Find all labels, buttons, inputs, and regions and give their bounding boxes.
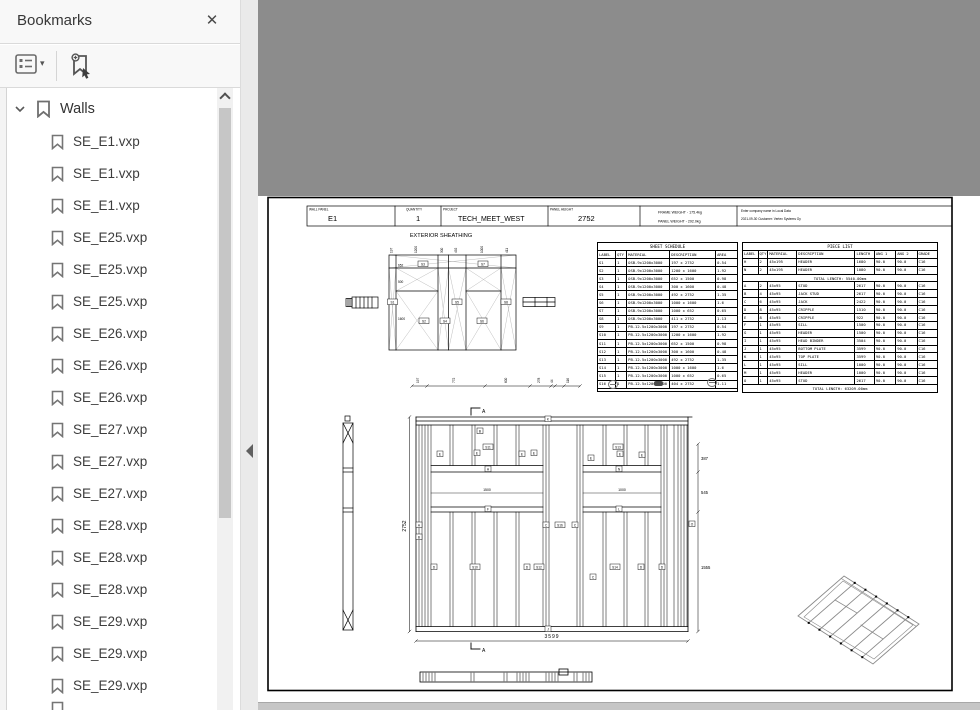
svg-text:E: E bbox=[533, 451, 535, 455]
elevation-label: E bbox=[474, 450, 480, 456]
table-row: S121PB-12.5x1200x3000300 x 16000.48 bbox=[598, 348, 737, 356]
stamp-mark bbox=[707, 378, 717, 387]
elevation-dims bbox=[408, 416, 700, 643]
table-cell: 1 bbox=[616, 259, 627, 266]
bookmark-item[interactable]: SE_E28.vxp bbox=[8, 510, 217, 542]
table-cell: 0.65 bbox=[716, 372, 737, 379]
table-cell: 300 x 1600 bbox=[670, 348, 716, 355]
bookmark-root-walls[interactable]: Walls bbox=[8, 94, 217, 124]
table-row: S81OSB-9x1200x3000411 x 27521.13 bbox=[598, 316, 737, 324]
table-row: S91PB-12.5x1200x3000197 x 27520.54 bbox=[598, 324, 737, 332]
table-cell: 1 bbox=[759, 346, 769, 353]
bookmark-item[interactable]: SE_E1.vxp bbox=[8, 158, 217, 190]
svg-text:F: F bbox=[487, 507, 489, 511]
bookmark-item-label: SE_E28.vxp bbox=[73, 518, 147, 533]
document-viewer: WALL PANEL E1 QUANTITY 1 PROJECT TECH_ME… bbox=[258, 0, 980, 710]
svg-text:PANEL WEIGHT - 292.0kg: PANEL WEIGHT - 292.0kg bbox=[658, 220, 701, 224]
table-cell: 1 bbox=[616, 348, 627, 355]
bookmark-icon bbox=[51, 326, 64, 342]
bookmark-icon bbox=[51, 134, 64, 150]
scrollbar-thumb[interactable] bbox=[219, 108, 231, 518]
table-cell: 1 bbox=[759, 369, 769, 376]
svg-text:500: 500 bbox=[398, 280, 404, 284]
svg-text:PANEL HEIGHT: PANEL HEIGHT bbox=[550, 208, 573, 212]
panel-divider bbox=[240, 0, 258, 710]
bookmark-item-label: SE_E1.vxp bbox=[73, 198, 140, 213]
elevation-label: D bbox=[431, 564, 437, 570]
table-cell: 1.92 bbox=[716, 267, 737, 274]
table-cell: C16 bbox=[918, 298, 937, 305]
table-cell: S12 bbox=[598, 348, 616, 355]
table-cell: 2 bbox=[759, 259, 769, 266]
table-cell: S8 bbox=[598, 316, 616, 323]
viewer-canvas-background bbox=[258, 0, 980, 196]
table-cell: C16 bbox=[918, 322, 937, 329]
bookmark-item-label: SE_E26.vxp bbox=[73, 326, 147, 341]
panel-scrollbar[interactable] bbox=[217, 88, 233, 710]
sheet-label: S8 bbox=[501, 299, 511, 305]
table-cell: CRIPPLE bbox=[797, 314, 855, 321]
table-cell: 1 bbox=[616, 316, 627, 323]
elevation-label: L bbox=[616, 506, 622, 512]
table-cell: K bbox=[743, 353, 759, 360]
table-cell: C16 bbox=[918, 267, 937, 274]
table-cell: 1000 bbox=[855, 361, 874, 368]
table-cell: LABEL bbox=[598, 251, 616, 258]
table-cell: 90.0 bbox=[875, 306, 896, 313]
bookmark-icon-partial bbox=[51, 701, 64, 710]
table-cell: 45x95 bbox=[768, 314, 797, 321]
table-cell: S9 bbox=[598, 324, 616, 331]
scroll-up-icon[interactable] bbox=[220, 92, 230, 102]
options-icon[interactable] bbox=[15, 54, 38, 75]
table-cell: SILL bbox=[797, 361, 855, 368]
elevation-label: N bbox=[616, 466, 622, 472]
table-cell: C16 bbox=[918, 259, 937, 266]
elevation-label: K bbox=[545, 416, 551, 422]
bookmark-item[interactable]: SE_E27.vxp bbox=[8, 446, 217, 478]
bookmark-icon bbox=[51, 390, 64, 406]
table-cell: DESCRIPTION bbox=[670, 251, 716, 258]
table-cell: 1 bbox=[616, 364, 627, 371]
bookmarks-tree: Walls SE_E1.vxpSE_E1.vxpSE_E1.vxpSE_E25.… bbox=[8, 88, 217, 710]
table-cell: 90.0 bbox=[896, 330, 917, 337]
table-cell: 45x95 bbox=[768, 282, 797, 289]
elevation-label: F bbox=[485, 506, 491, 512]
table-cell: 4 bbox=[759, 290, 769, 297]
collapse-left-icon[interactable] bbox=[246, 444, 253, 458]
table-cell: TOP PLATE bbox=[797, 353, 855, 360]
bookmarks-toolbar: ▾ bbox=[0, 45, 258, 88]
table-cell: 1.35 bbox=[716, 356, 737, 363]
table-cell: 90.0 bbox=[896, 298, 917, 305]
svg-text:E: E bbox=[641, 453, 643, 457]
svg-text:B: B bbox=[418, 535, 420, 539]
table-cell: S10 bbox=[598, 332, 616, 339]
table-cell: 1 bbox=[616, 300, 627, 307]
bookmark-icon bbox=[51, 262, 64, 278]
table-cell: 90.0 bbox=[896, 259, 917, 266]
table-cell: 1 bbox=[616, 324, 627, 331]
table-row: L145x95SILL100090.090.0C16 bbox=[743, 361, 937, 369]
table-row: C645x95JACK242290.090.0C16 bbox=[743, 298, 937, 306]
table-cell: C16 bbox=[918, 361, 937, 368]
elevation-studs bbox=[419, 425, 687, 627]
table-cell: 90.0 bbox=[896, 338, 917, 345]
bookmark-item[interactable]: SE_E1.vxp bbox=[8, 190, 217, 222]
table-cell: 0.98 bbox=[716, 340, 737, 347]
table-cell: 1080 bbox=[855, 267, 874, 274]
section-label-bottom: A bbox=[482, 648, 486, 654]
table-cell: SILL bbox=[797, 322, 855, 329]
table-cell: 90.0 bbox=[896, 322, 917, 329]
table-cell: 1000 x 1600 bbox=[670, 300, 716, 307]
table-cell: QTY bbox=[616, 251, 627, 258]
table-row: LABELQTYMATERIALDESCRIPTIONAREA bbox=[598, 251, 737, 259]
bookmark-icon bbox=[51, 678, 64, 694]
table-row: H245x195HEADER168090.090.0C16 bbox=[743, 259, 937, 267]
table-cell: O bbox=[743, 377, 759, 384]
bookmark-item[interactable]: SE_E26.vxp bbox=[8, 350, 217, 382]
table-cell: 492 x 2752 bbox=[670, 291, 716, 298]
elevation-label: E bbox=[531, 450, 537, 456]
table-cell: PB-12.5x1200x3000 bbox=[627, 324, 670, 331]
bookmark-item-label: SE_E25.vxp bbox=[73, 262, 147, 277]
table-cell: 0.65 bbox=[716, 308, 737, 315]
table-cell: 2617 bbox=[855, 290, 874, 297]
table-cell: 45x195 bbox=[768, 259, 797, 266]
sheathing-top-dim: 1200 bbox=[414, 246, 418, 253]
table-cell: S15 bbox=[598, 372, 616, 379]
table-total: TOTAL LENGTH: 5540.00mm bbox=[743, 275, 937, 283]
svg-text:Enter company name in Local Da: Enter company name in Local Data bbox=[741, 209, 791, 213]
sheathing-top-dim: 1000 bbox=[480, 246, 484, 253]
table-cell: OSB-9x1200x3000 bbox=[627, 275, 670, 282]
table-cell: S4 bbox=[598, 283, 616, 290]
svg-text:1: 1 bbox=[416, 214, 420, 223]
table-cell: C16 bbox=[918, 338, 937, 345]
table-row: S11OSB-9x1200x3000197 x 27520.54 bbox=[598, 259, 737, 267]
chevron-down-icon[interactable] bbox=[14, 103, 26, 115]
table-cell: 1510 bbox=[855, 306, 874, 313]
table-cell: 1 bbox=[616, 283, 627, 290]
table-cell: C16 bbox=[918, 369, 937, 376]
table-cell: STUD bbox=[797, 377, 855, 384]
table-cell: 2422 bbox=[855, 298, 874, 305]
table-cell: OSB-9x1200x3000 bbox=[627, 300, 670, 307]
elevation-plates bbox=[416, 417, 692, 632]
bookmark-item[interactable]: SE_E27.vxp bbox=[8, 478, 217, 510]
table-cell: 0.48 bbox=[716, 348, 737, 355]
svg-text:S10: S10 bbox=[472, 565, 478, 569]
table-row: F145x95SILL150090.090.0C16 bbox=[743, 322, 937, 330]
table-row: J145x95BOTTOM PLATE359990.090.0C16 bbox=[743, 346, 937, 354]
sheet-label: S6 bbox=[477, 318, 487, 324]
bookmark-item[interactable]: SE_E25.vxp bbox=[8, 286, 217, 318]
table-cell: 6 bbox=[759, 298, 769, 305]
table-row: M145x95HEADER100090.090.0C16 bbox=[743, 369, 937, 377]
table-cell: S7 bbox=[598, 308, 616, 315]
svg-text:1000: 1000 bbox=[618, 488, 626, 492]
bookmark-item-label: SE_E27.vxp bbox=[73, 454, 147, 469]
bookmark-item[interactable]: SE_E25.vxp bbox=[8, 254, 217, 286]
svg-text:QUANTITY: QUANTITY bbox=[406, 208, 423, 212]
table-cell: DESCRIPTION bbox=[797, 251, 855, 258]
svg-text:1500: 1500 bbox=[483, 488, 491, 492]
svg-text:2752: 2752 bbox=[402, 520, 408, 531]
bookmark-list: SE_E1.vxpSE_E1.vxpSE_E1.vxpSE_E25.vxpSE_… bbox=[8, 126, 217, 702]
svg-text:S13: S13 bbox=[615, 445, 621, 449]
bookmark-item-label: SE_E29.vxp bbox=[73, 614, 147, 629]
elevation-label: D bbox=[524, 564, 530, 570]
table-cell: S14 bbox=[598, 364, 616, 371]
table-cell: 90.0 bbox=[896, 353, 917, 360]
table-cell: GRADE bbox=[918, 251, 937, 258]
elevation-label: E bbox=[588, 455, 594, 461]
table-cell: OSB-9x1200x3000 bbox=[627, 283, 670, 290]
bookmark-item[interactable]: SE_E26.vxp bbox=[8, 382, 217, 414]
table-cell: 1 bbox=[616, 340, 627, 347]
svg-text:S16: S16 bbox=[557, 523, 563, 527]
table-row: S141PB-12.5x1200x30001000 x 16001.6 bbox=[598, 364, 737, 372]
elevation-label: S12 bbox=[534, 564, 544, 570]
table-cell: 1 bbox=[616, 267, 627, 274]
table-cell: F bbox=[743, 322, 759, 329]
table-cell: 1.6 bbox=[716, 300, 737, 307]
bookmark-item[interactable]: SE_E29.vxp bbox=[8, 670, 217, 702]
table-cell: 45x95 bbox=[768, 306, 797, 313]
table-row: A245x95STUD261790.090.0C16 bbox=[743, 282, 937, 290]
svg-text:S6: S6 bbox=[480, 319, 484, 323]
table-cell: 1 bbox=[616, 308, 627, 315]
table-cell: 300 x 1600 bbox=[670, 283, 716, 290]
bottom-dim-label: 278 bbox=[537, 377, 541, 383]
table-cell: 45x95 bbox=[768, 330, 797, 337]
table-cell: 8 bbox=[759, 314, 769, 321]
table-cell: C16 bbox=[918, 290, 937, 297]
table-cell: G bbox=[743, 330, 759, 337]
bookmark-item[interactable]: SE_E26.vxp bbox=[8, 318, 217, 350]
bookmark-item[interactable]: SE_E29.vxp bbox=[8, 638, 217, 670]
table-cell: AREA bbox=[716, 251, 737, 258]
bookmark-item-label: SE_E27.vxp bbox=[73, 486, 147, 501]
elevation-label: S13 bbox=[613, 444, 623, 450]
table-cell: 1000 x 1600 bbox=[670, 364, 716, 371]
svg-text:S1: S1 bbox=[391, 300, 395, 304]
elevation-label: S10 bbox=[470, 564, 480, 570]
table-cell: C16 bbox=[918, 377, 937, 384]
elevation-dim-text: 2752 3599 387 545 1555 1500 1000 bbox=[402, 456, 711, 640]
bookmark-icon bbox=[51, 486, 64, 502]
chevron-down-icon[interactable]: ▾ bbox=[40, 58, 45, 69]
panel-left-rail bbox=[0, 88, 7, 710]
table-cell: 1500 bbox=[855, 330, 874, 337]
table-cell: 2 bbox=[759, 282, 769, 289]
table-cell: PB-12.5x1200x3000 bbox=[627, 348, 670, 355]
table-cell: 90.0 bbox=[875, 377, 896, 384]
table-row: LABELQTYMATERIALDESCRIPTIONLENGTHANG 1AN… bbox=[743, 251, 937, 259]
elevation-label: E bbox=[639, 452, 645, 458]
bookmark-item[interactable]: SE_E28.vxp bbox=[8, 574, 217, 606]
pdf-page[interactable]: WALL PANEL E1 QUANTITY 1 PROJECT TECH_ME… bbox=[258, 196, 980, 702]
table-cell: 197 x 2752 bbox=[670, 259, 716, 266]
table-cell: 2617 bbox=[855, 282, 874, 289]
table-cell: 90.0 bbox=[875, 353, 896, 360]
dimension-string bbox=[411, 385, 582, 388]
bookmark-icon bbox=[51, 646, 64, 662]
table-cell: 1200 x 1600 bbox=[670, 332, 716, 339]
sheathing-top-dims: 19712003004921000411 bbox=[390, 246, 510, 253]
table-cell: 1680 bbox=[855, 259, 874, 266]
svg-text:FRAME WEIGHT - 175.4kg: FRAME WEIGHT - 175.4kg bbox=[658, 211, 702, 215]
table-summary: Summary: 17.0m2 bbox=[598, 389, 737, 392]
bookmark-icon bbox=[51, 454, 64, 470]
bookmark-icon bbox=[51, 422, 64, 438]
table-cell: 1 bbox=[759, 322, 769, 329]
table-cell: 45x95 bbox=[768, 353, 797, 360]
elevation-label: B bbox=[477, 428, 483, 434]
elevation-side-view bbox=[343, 416, 353, 630]
table-row: S51OSB-9x1200x3000492 x 27521.35 bbox=[598, 291, 737, 299]
svg-text:S7: S7 bbox=[481, 262, 485, 266]
svg-text:B: B bbox=[479, 429, 481, 433]
table-row: S101PB-12.5x1200x30001200 x 16001.92 bbox=[598, 332, 737, 340]
table-cell: H bbox=[743, 259, 759, 266]
bookmark-item-label: SE_E1.vxp bbox=[73, 134, 140, 149]
table-cell: 45x95 bbox=[768, 298, 797, 305]
bookmark-icon bbox=[51, 230, 64, 246]
title-block-text: WALL PANEL E1 QUANTITY 1 PROJECT TECH_ME… bbox=[309, 208, 801, 224]
elevation-label: C bbox=[590, 574, 596, 580]
table-cell: 90.0 bbox=[896, 290, 917, 297]
table-cell: PB-12.5x1200x3000 bbox=[627, 356, 670, 363]
elevation-label: S14 bbox=[610, 564, 620, 570]
elevation-label: J bbox=[545, 626, 551, 632]
table-cell: S5 bbox=[598, 291, 616, 298]
table-cell: 90.0 bbox=[875, 298, 896, 305]
table-cell: C16 bbox=[918, 282, 937, 289]
svg-text:S8: S8 bbox=[504, 300, 508, 304]
bookmark-icon bbox=[36, 100, 51, 118]
table-cell: PB-12.5x1200x3000 bbox=[627, 372, 670, 379]
sheet-label: S2 bbox=[419, 318, 429, 324]
bottom-dim-label: 772 bbox=[452, 377, 456, 383]
bookmark-item[interactable]: SE_E29.vxp bbox=[8, 606, 217, 638]
horizontal-scrollbar[interactable] bbox=[258, 702, 980, 710]
table-cell: PB-12.5x1200x3000 bbox=[627, 340, 670, 347]
table-cell: MATERIAL bbox=[768, 251, 797, 258]
table-title: PIECE LIST bbox=[743, 243, 937, 251]
table-cell: A bbox=[743, 282, 759, 289]
table-cell: 652 x 1500 bbox=[670, 275, 716, 282]
table-cell: 90.0 bbox=[875, 330, 896, 337]
table-cell: HEADER bbox=[797, 330, 855, 337]
table-cell: 1 bbox=[759, 353, 769, 360]
table-body: A245x95STUD261790.090.0C16B445x95JACK ST… bbox=[743, 282, 937, 385]
table-cell: 3599 bbox=[855, 346, 874, 353]
table-cell: 1.35 bbox=[716, 291, 737, 298]
bookmark-item-label: SE_E25.vxp bbox=[73, 230, 147, 245]
elevation-label: O bbox=[689, 521, 695, 527]
bottom-dim-label: 197 bbox=[416, 377, 420, 383]
dimension-string-labels: 19777260027844116 bbox=[416, 377, 570, 383]
table-title: SHEET SCHEDULE bbox=[598, 243, 737, 251]
bookmark-item[interactable]: SE_E28.vxp bbox=[8, 542, 217, 574]
close-icon[interactable]: ✕ bbox=[202, 11, 222, 31]
bookmark-icon bbox=[51, 518, 64, 534]
table-cell: CRIPPLE bbox=[797, 306, 855, 313]
table-cell: OSB-9x1200x3000 bbox=[627, 259, 670, 266]
table-cell: 1.92 bbox=[716, 332, 737, 339]
table-cell: PB-12.5x1200x3000 bbox=[627, 332, 670, 339]
table-cell: D bbox=[743, 306, 759, 313]
table-cell: L bbox=[743, 361, 759, 368]
table-cell: HEAD BINDER bbox=[797, 338, 855, 345]
table-cell: 90.0 bbox=[896, 346, 917, 353]
table-cell: I bbox=[743, 338, 759, 345]
sheet-label: S5 bbox=[452, 299, 462, 305]
table-cell: 1 bbox=[616, 332, 627, 339]
table-row: S61OSB-9x1200x30001000 x 16001.6 bbox=[598, 300, 737, 308]
svg-text:1555: 1555 bbox=[701, 565, 711, 570]
sheathing-side-dims: 652 500 1600 bbox=[398, 264, 405, 322]
sheathing-top-dim: 492 bbox=[454, 247, 458, 253]
new-bookmark-icon[interactable] bbox=[68, 52, 94, 80]
table-cell: 90.0 bbox=[896, 314, 917, 321]
table-cell: JACK bbox=[797, 298, 855, 305]
table-cell: 3504 bbox=[855, 338, 874, 345]
svg-text:545: 545 bbox=[701, 490, 709, 495]
table-cell: 0.54 bbox=[716, 324, 737, 331]
sheathing-view bbox=[346, 255, 555, 350]
table-cell: 90.0 bbox=[896, 377, 917, 384]
bookmark-icon bbox=[51, 358, 64, 374]
svg-text:E: E bbox=[521, 452, 523, 456]
bookmark-item[interactable]: SE_E1.vxp bbox=[8, 126, 217, 158]
table-cell: 90.0 bbox=[896, 267, 917, 274]
table-cell: 45x95 bbox=[768, 322, 797, 329]
table-cell: 2617 bbox=[855, 377, 874, 384]
title-block bbox=[307, 206, 952, 226]
svg-text:PROJECT: PROJECT bbox=[443, 208, 458, 212]
table-cell: 1 bbox=[616, 291, 627, 298]
svg-text:TECH_MEET_WEST: TECH_MEET_WEST bbox=[458, 216, 525, 223]
table-cell: S11 bbox=[598, 340, 616, 347]
table-cell: OSB-9x1200x3000 bbox=[627, 308, 670, 315]
table-cell: 45x95 bbox=[768, 369, 797, 376]
bottom-dim-label: 116 bbox=[566, 378, 570, 383]
bookmark-item-label: SE_E28.vxp bbox=[73, 550, 147, 565]
table-cell: 45x95 bbox=[768, 338, 797, 345]
table-row: I145x95HEAD BINDER350490.090.0C16 bbox=[743, 338, 937, 346]
table-cell: 1000 x 652 bbox=[670, 308, 716, 315]
table-cell: 45x95 bbox=[768, 361, 797, 368]
table-cell: STUD bbox=[797, 282, 855, 289]
table-cell: ANG 1 bbox=[875, 251, 896, 258]
svg-text:E: E bbox=[619, 452, 621, 456]
table-cell: 90.0 bbox=[875, 290, 896, 297]
bookmark-item[interactable]: SE_E27.vxp bbox=[8, 414, 217, 446]
table-cell: ANG 2 bbox=[896, 251, 917, 258]
sheathing-top-dim: 411 bbox=[505, 248, 509, 253]
bookmark-icon bbox=[51, 582, 64, 598]
elevation-label: E bbox=[437, 451, 443, 457]
table-cell: 90.0 bbox=[875, 322, 896, 329]
table-cell: 492 x 2752 bbox=[670, 356, 716, 363]
bookmark-icon bbox=[51, 198, 64, 214]
bookmark-item[interactable]: SE_E25.vxp bbox=[8, 222, 217, 254]
table-cell: C16 bbox=[918, 346, 937, 353]
